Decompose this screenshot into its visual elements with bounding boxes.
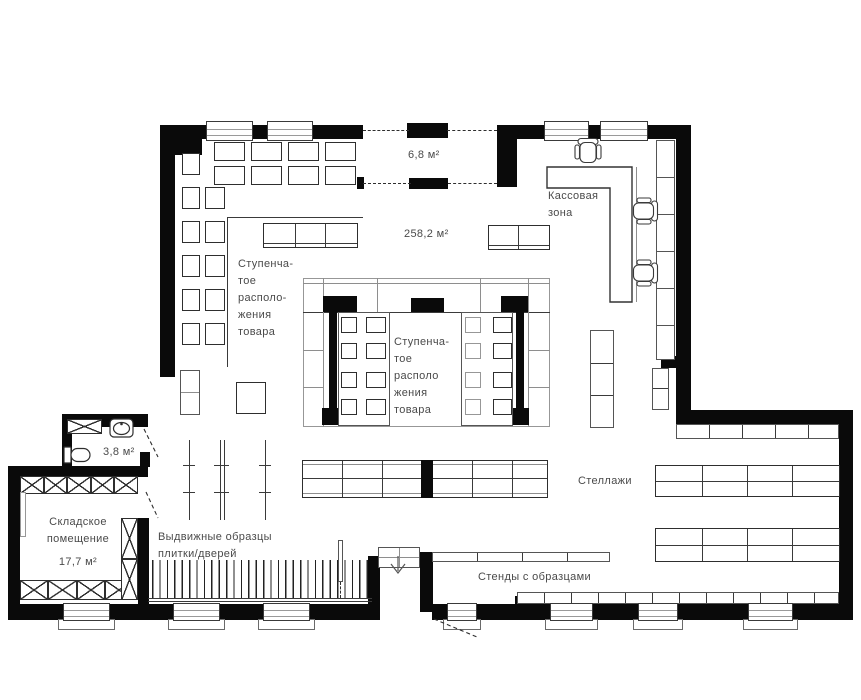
door-swing bbox=[146, 492, 158, 518]
office-chair-icon bbox=[634, 260, 658, 286]
cash-desk bbox=[547, 167, 632, 302]
door-swing bbox=[144, 429, 158, 457]
door-swing bbox=[434, 619, 477, 637]
stairs-down-arrow-icon bbox=[391, 556, 405, 573]
office-chair-icon bbox=[575, 139, 601, 163]
office-chair-icon bbox=[634, 198, 658, 224]
sink-icon bbox=[110, 419, 133, 437]
fixtures-overlay bbox=[0, 0, 861, 700]
toilet-icon bbox=[64, 447, 90, 463]
floor-plan: 6,8 м² Ступенча- тое располо- жения това… bbox=[0, 0, 861, 700]
